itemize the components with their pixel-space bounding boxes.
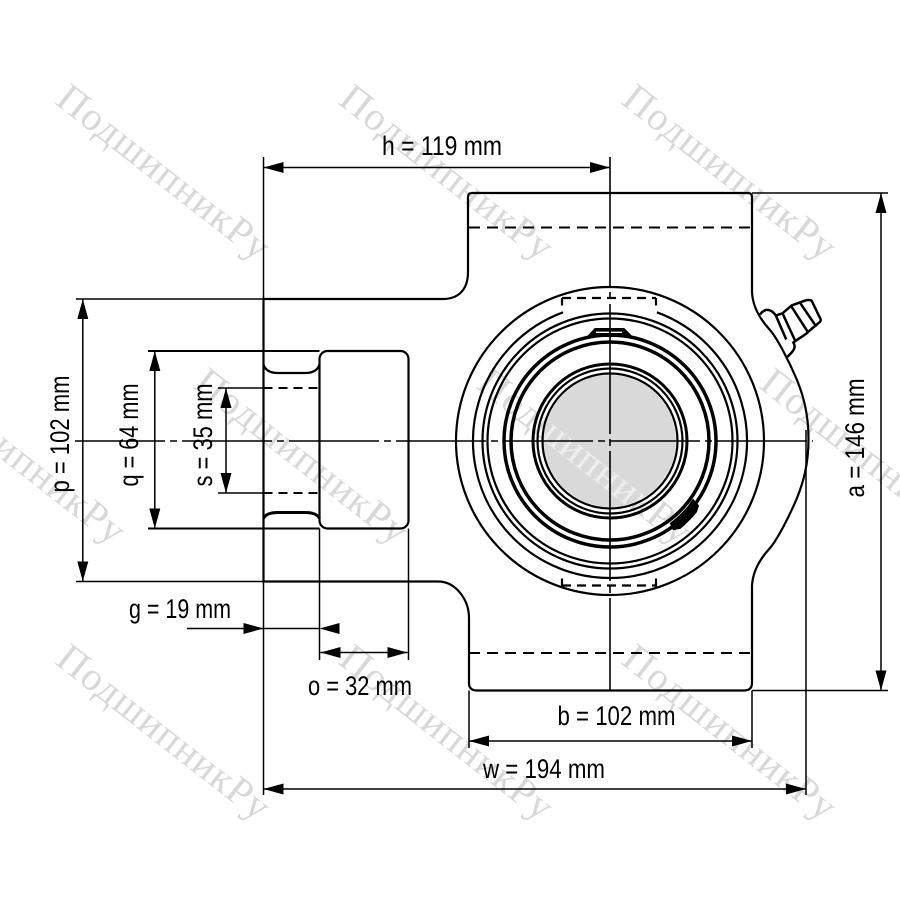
svg-text:p = 102 mm: p = 102 mm bbox=[45, 376, 75, 493]
svg-text:o = 32 mm: o = 32 mm bbox=[308, 671, 412, 701]
svg-text:h = 119 mm: h = 119 mm bbox=[382, 131, 502, 161]
svg-text:a = 146 mm: a = 146 mm bbox=[840, 379, 870, 498]
svg-text:b = 102 mm: b = 102 mm bbox=[558, 701, 676, 731]
svg-text:ПодшипникРу: ПодшипникРу bbox=[752, 359, 900, 554]
svg-text:ПодшипникРу: ПодшипникРу bbox=[614, 75, 846, 270]
svg-text:q = 64 mm: q = 64 mm bbox=[114, 384, 144, 487]
svg-text:w = 194 mm: w = 194 mm bbox=[482, 754, 605, 784]
svg-text:ПодшипникРу: ПодшипникРу bbox=[48, 75, 280, 270]
svg-text:g = 19 mm: g = 19 mm bbox=[129, 594, 231, 624]
svg-text:ПодшипникРу: ПодшипникРу bbox=[331, 75, 563, 270]
svg-text:ПодшипникРу: ПодшипникРу bbox=[331, 635, 563, 830]
svg-text:ПодшипникРу: ПодшипникРу bbox=[48, 635, 280, 830]
svg-text:ПодшипникРу: ПодшипникРу bbox=[614, 635, 846, 830]
svg-text:s = 35 mm: s = 35 mm bbox=[188, 384, 218, 487]
